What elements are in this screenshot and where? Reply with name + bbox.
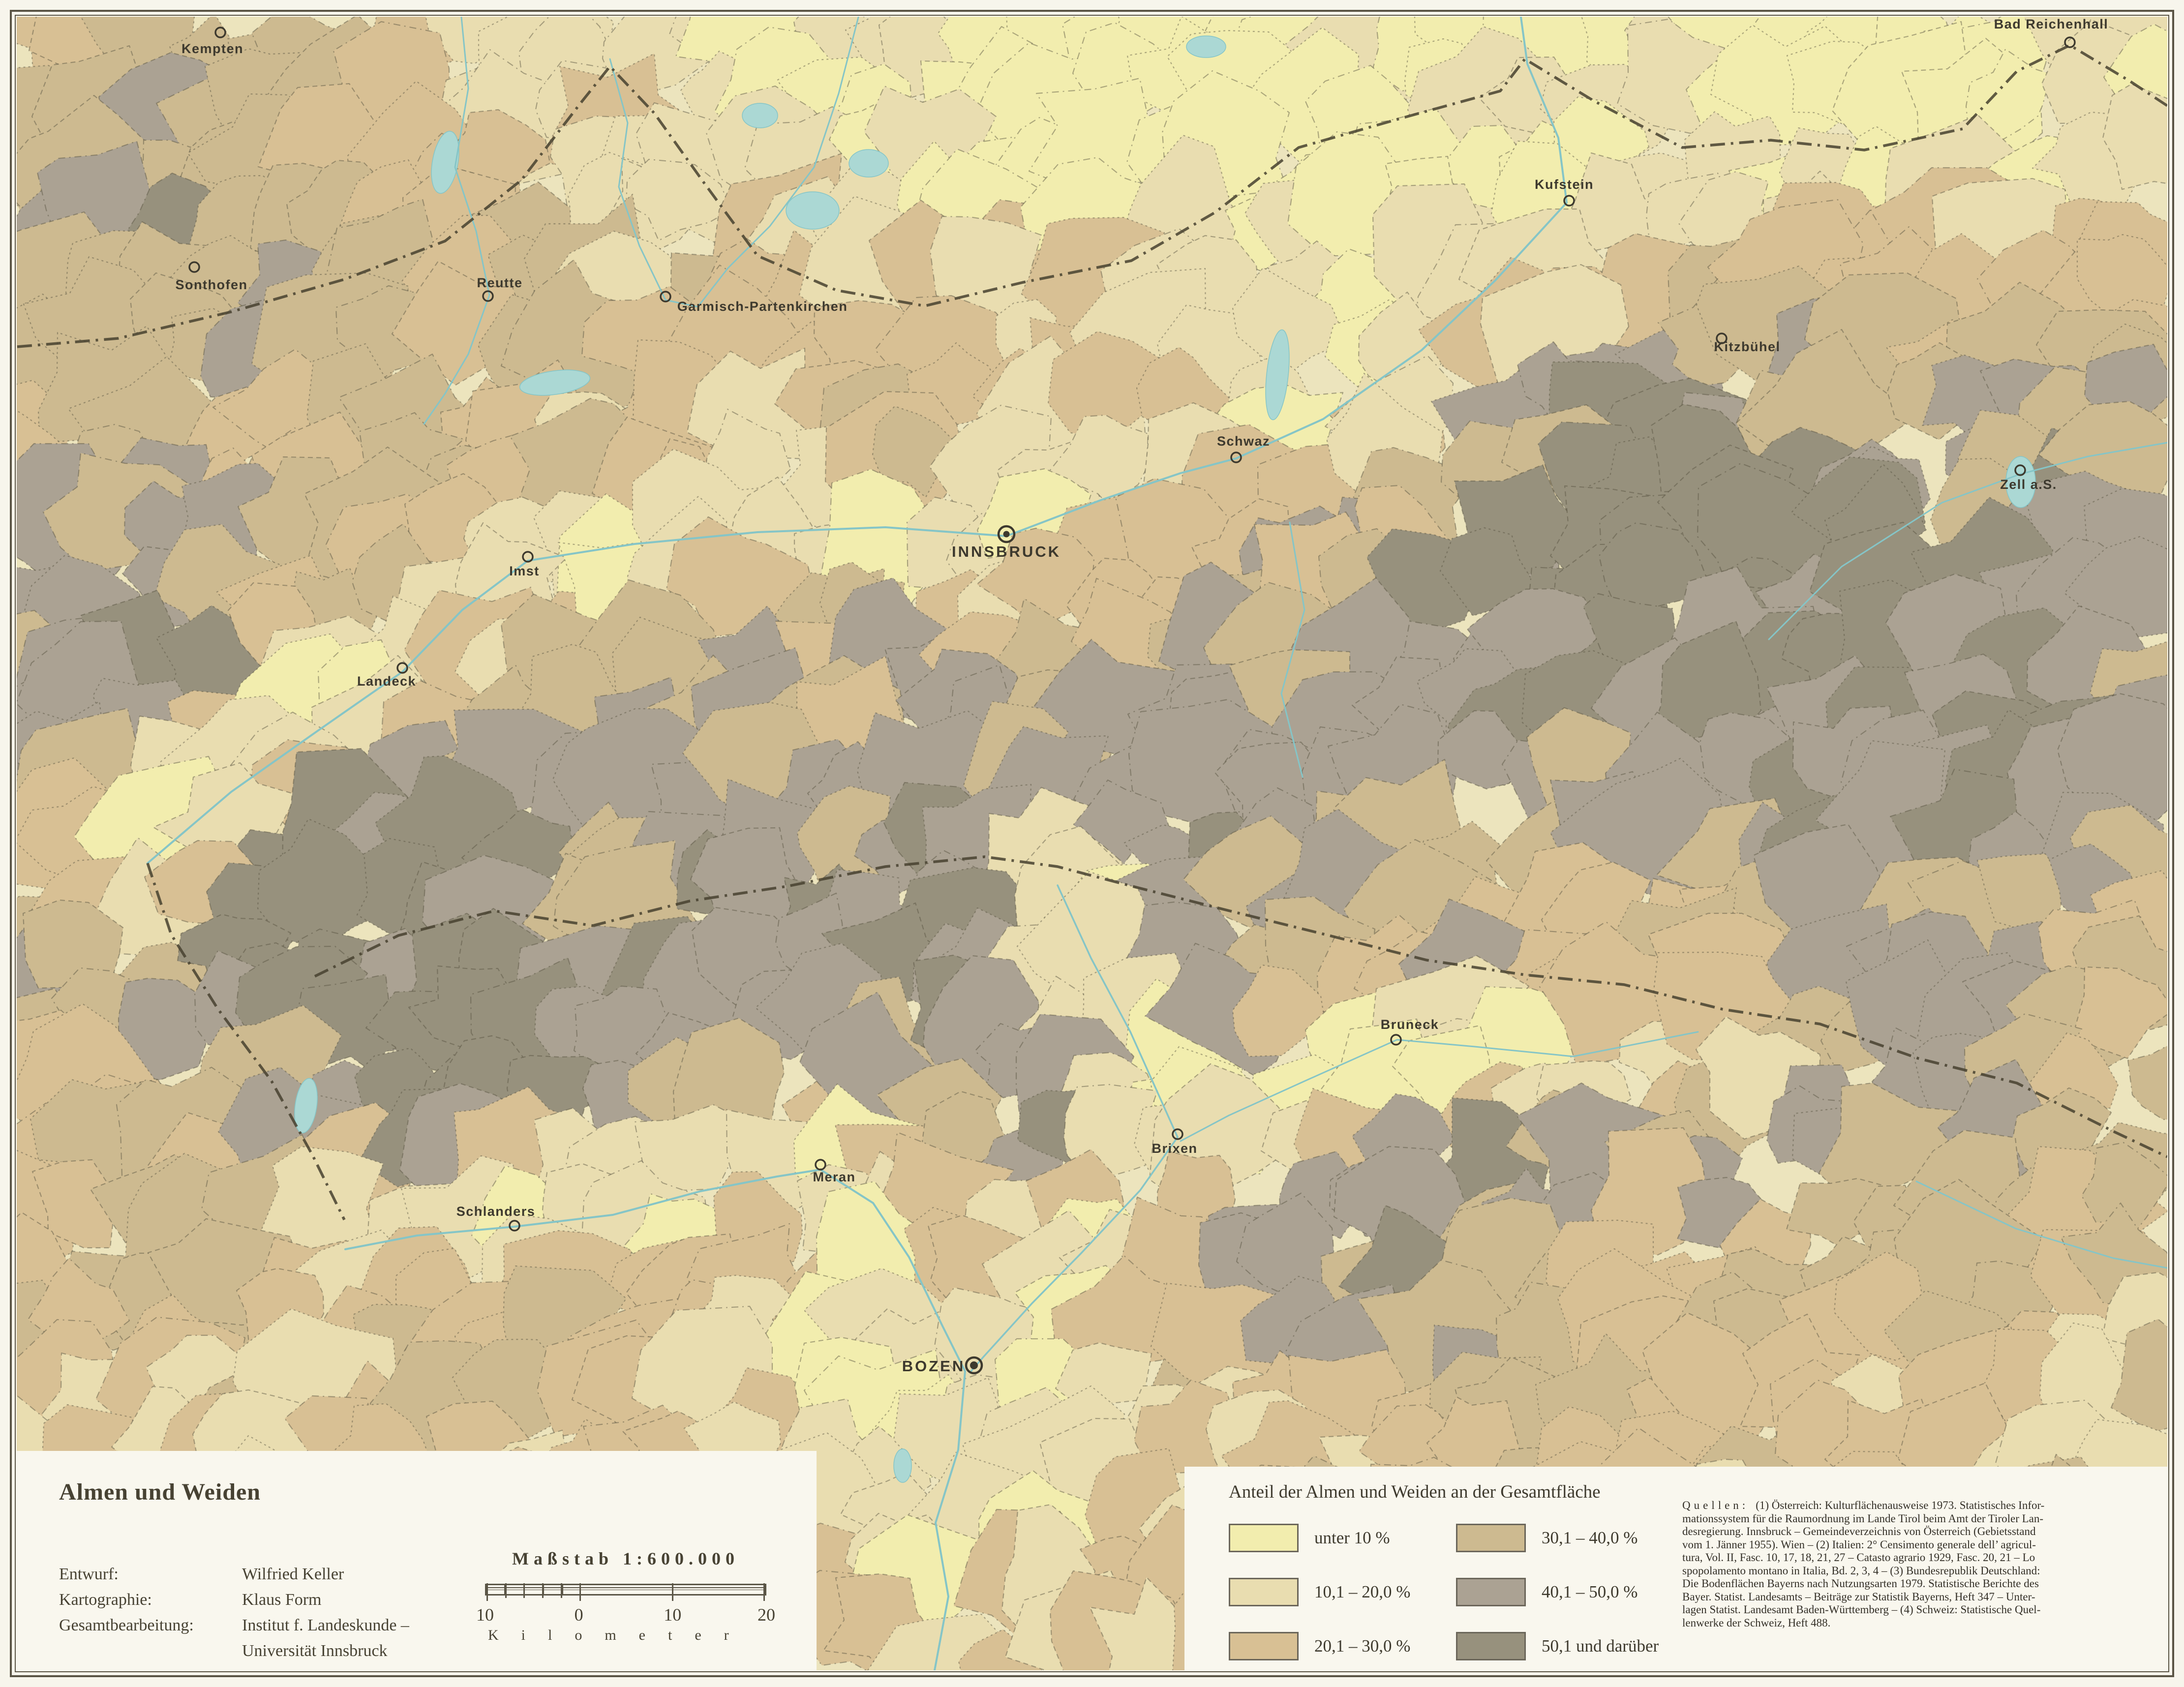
title-panel: Almen und Weiden Entwurf: Wilfried Kelle… [17,1451,817,1670]
scale-number: 10 [476,1604,494,1625]
map-canvas: KemptenSonthofenBad ReichenhallReutteGar… [17,17,2167,1670]
lake-kochelsee [849,150,888,177]
legend-item: unter 10 % [1229,1524,1390,1552]
legend-label: 30,1 – 40,0 % [1542,1528,1638,1548]
scale-tick-minor [542,1583,544,1598]
town-label-meran: Meran [813,1170,855,1184]
legend-label: 20,1 – 30,0 % [1314,1636,1410,1656]
source-line: vom 1. Jänner 1955). Wien – (2) Italien:… [1682,1538,2167,1552]
town-label-schwaz: Schwaz [1217,434,1270,449]
city-marker-dot-innsbruck [1003,531,1010,538]
town-label-kempten: Kempten [182,41,243,56]
town-label-brixen: Brixen [1152,1141,1197,1156]
legend-item: 10,1 – 20,0 % [1229,1578,1410,1606]
legend-label: 40,1 – 50,0 % [1542,1582,1638,1602]
source-line: Bayer. Statist. Landesamts – Beiträge zu… [1682,1591,2167,1604]
town-label-reutte: Reutte [477,275,522,290]
scale-bar: Maßstab 1:600.000 10 0 10 20 Kilometer [485,1548,766,1644]
scale-number: 0 [575,1604,583,1625]
scale-tick [672,1583,673,1601]
lake-see-nord [1186,36,1226,58]
scale-number: 20 [758,1604,775,1625]
source-line: Die Bodenflächen Bayerns nach Nutzungsar… [1682,1577,2167,1591]
credit-row: Kartographie: Klaus Form [59,1591,409,1616]
legend-label: unter 10 % [1314,1528,1390,1548]
sources-block: Quellen:(1) Österreich: Kulturflächenaus… [1682,1499,2167,1629]
legend-swatch [1229,1578,1299,1606]
scale-tick-minor [561,1583,562,1598]
town-label-bozen: BOZEN [902,1357,966,1375]
scale-tick [763,1583,765,1601]
town-label-bad-reichenhall: Bad Reichenhall [1994,17,2109,31]
town-label-imst: Imst [509,564,540,578]
scale-numbers: 10 0 10 20 [485,1604,766,1625]
choropleth-map: KemptenSonthofenBad ReichenhallReutteGar… [17,17,2167,1670]
lake-staffelsee [742,103,778,128]
town-label-garmisch-partenkirchen: Garmisch-Partenkirchen [677,299,848,314]
scale-bar-graphic [485,1584,766,1596]
scale-bar-hatch [486,1585,579,1594]
legend-label: 10,1 – 20,0 % [1314,1582,1410,1602]
town-label-kitzb-hel: Kitzbühel [1714,339,1781,354]
legend-swatch [1229,1632,1299,1660]
scale-tick-minor [505,1583,507,1598]
credit-label: Gesamtbearbeitung: [59,1616,242,1635]
credit-row: Entwurf: Wilfried Keller [59,1565,409,1591]
source-line-text: (1) Österreich: Kulturflächenausweise 19… [1756,1499,2044,1511]
legend-swatch [1229,1524,1299,1552]
legend-item: 50,1 und darüber [1456,1632,1659,1660]
sources-lead: Quellen: [1682,1499,1749,1511]
legend-swatch [1456,1524,1526,1552]
city-marker-dot-bozen [970,1361,978,1369]
credit-row: Universität Innsbruck [59,1642,409,1667]
legend-title: Anteil der Almen und Weiden an der Gesam… [1229,1481,1601,1503]
town-label-innsbruck: INNSBRUCK [952,543,1061,560]
page-title: Almen und Weiden [59,1478,261,1506]
town-label-sonthofen: Sonthofen [176,277,248,292]
lake-walchensee [786,192,839,229]
source-line: spopolamento montano in Italia, Bd. 2, 3… [1682,1565,2167,1578]
credit-value: Universität Innsbruck [242,1642,388,1660]
legend-item: 40,1 – 50,0 % [1456,1578,1638,1606]
source-line: mationssystem für die Raumordnung im Lan… [1682,1512,2167,1526]
source-line: desregierung. Innsbruck – Gemeindeverzei… [1682,1525,2167,1538]
legend-item: 30,1 – 40,0 % [1456,1524,1638,1552]
map-sheet: { "map_title": "Almen und Weiden", "cred… [0,0,2184,1687]
legend-swatch [1456,1632,1526,1660]
municipality-mosaic [17,17,2167,1670]
scale-number: 10 [664,1604,681,1625]
source-line: Quellen:(1) Österreich: Kulturflächenaus… [1682,1499,2167,1512]
source-line: lenwerke der Schweiz, Heft 488. [1682,1617,2167,1630]
source-line: lagen Statist. Landesamt Baden-Württembe… [1682,1603,2167,1617]
town-label-landeck: Landeck [357,674,416,689]
town-label-zell-a-s: Zell a.S. [2000,477,2057,492]
credit-label: Entwurf: [59,1565,242,1584]
credit-label: Kartographie: [59,1591,242,1609]
scale-tick [486,1583,488,1601]
credits-block: Entwurf: Wilfried Keller Kartographie: K… [59,1565,409,1667]
lake-kalterer-see [894,1449,911,1482]
town-label-kufstein: Kufstein [1535,177,1594,192]
town-label-schlanders: Schlanders [456,1204,536,1219]
scale-tick [579,1583,581,1601]
town-label-bruneck: Bruneck [1381,1017,1439,1032]
credit-value: Institut f. Landeskunde – [242,1616,409,1635]
credit-row: Gesamtbearbeitung: Institut f. Landeskun… [59,1616,409,1642]
credit-value: Wilfried Keller [242,1565,344,1584]
source-line: tura, Vol. II, Fasc. 10, 17, 18, 21, 27 … [1682,1551,2167,1565]
credit-value: Klaus Form [242,1591,322,1609]
scale-unit: Kilometer [485,1627,766,1644]
legend-panel: Anteil der Almen und Weiden an der Gesam… [1184,1467,2167,1670]
municipality-area [2128,1039,2167,1120]
legend-label: 50,1 und darüber [1542,1636,1659,1656]
scale-tick-minor [523,1583,525,1598]
legend-item: 20,1 – 30,0 % [1229,1632,1410,1660]
legend-swatch [1456,1578,1526,1606]
scale-label: Maßstab 1:600.000 [485,1548,766,1569]
